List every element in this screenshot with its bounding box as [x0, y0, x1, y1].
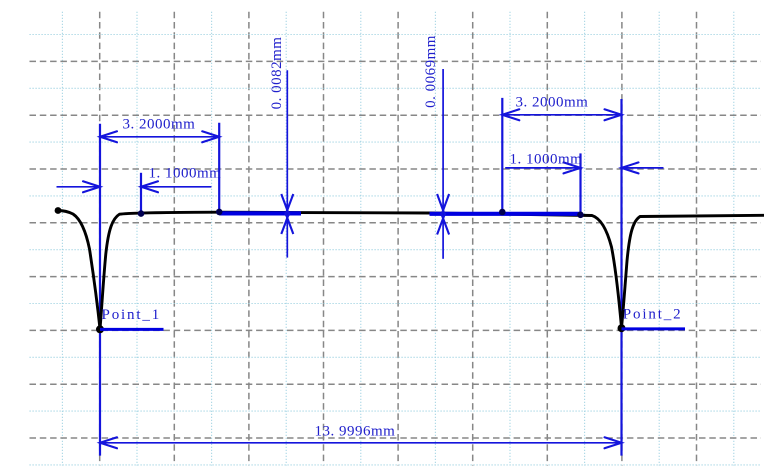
svg-text:1. 1000mm: 1. 1000mm: [510, 151, 583, 167]
svg-text:Point_2: Point_2: [623, 306, 683, 322]
svg-text:1. 1000mm: 1. 1000mm: [149, 165, 222, 181]
svg-text:Point_1: Point_1: [102, 307, 162, 323]
svg-text:3. 2000mm: 3. 2000mm: [516, 95, 589, 111]
svg-text:3. 2000mm: 3. 2000mm: [123, 117, 196, 133]
svg-text:0. 0069mm: 0. 0069mm: [423, 35, 439, 108]
svg-text:0. 0082mm: 0. 0082mm: [269, 37, 285, 110]
svg-text:13. 9996mm: 13. 9996mm: [315, 423, 396, 439]
